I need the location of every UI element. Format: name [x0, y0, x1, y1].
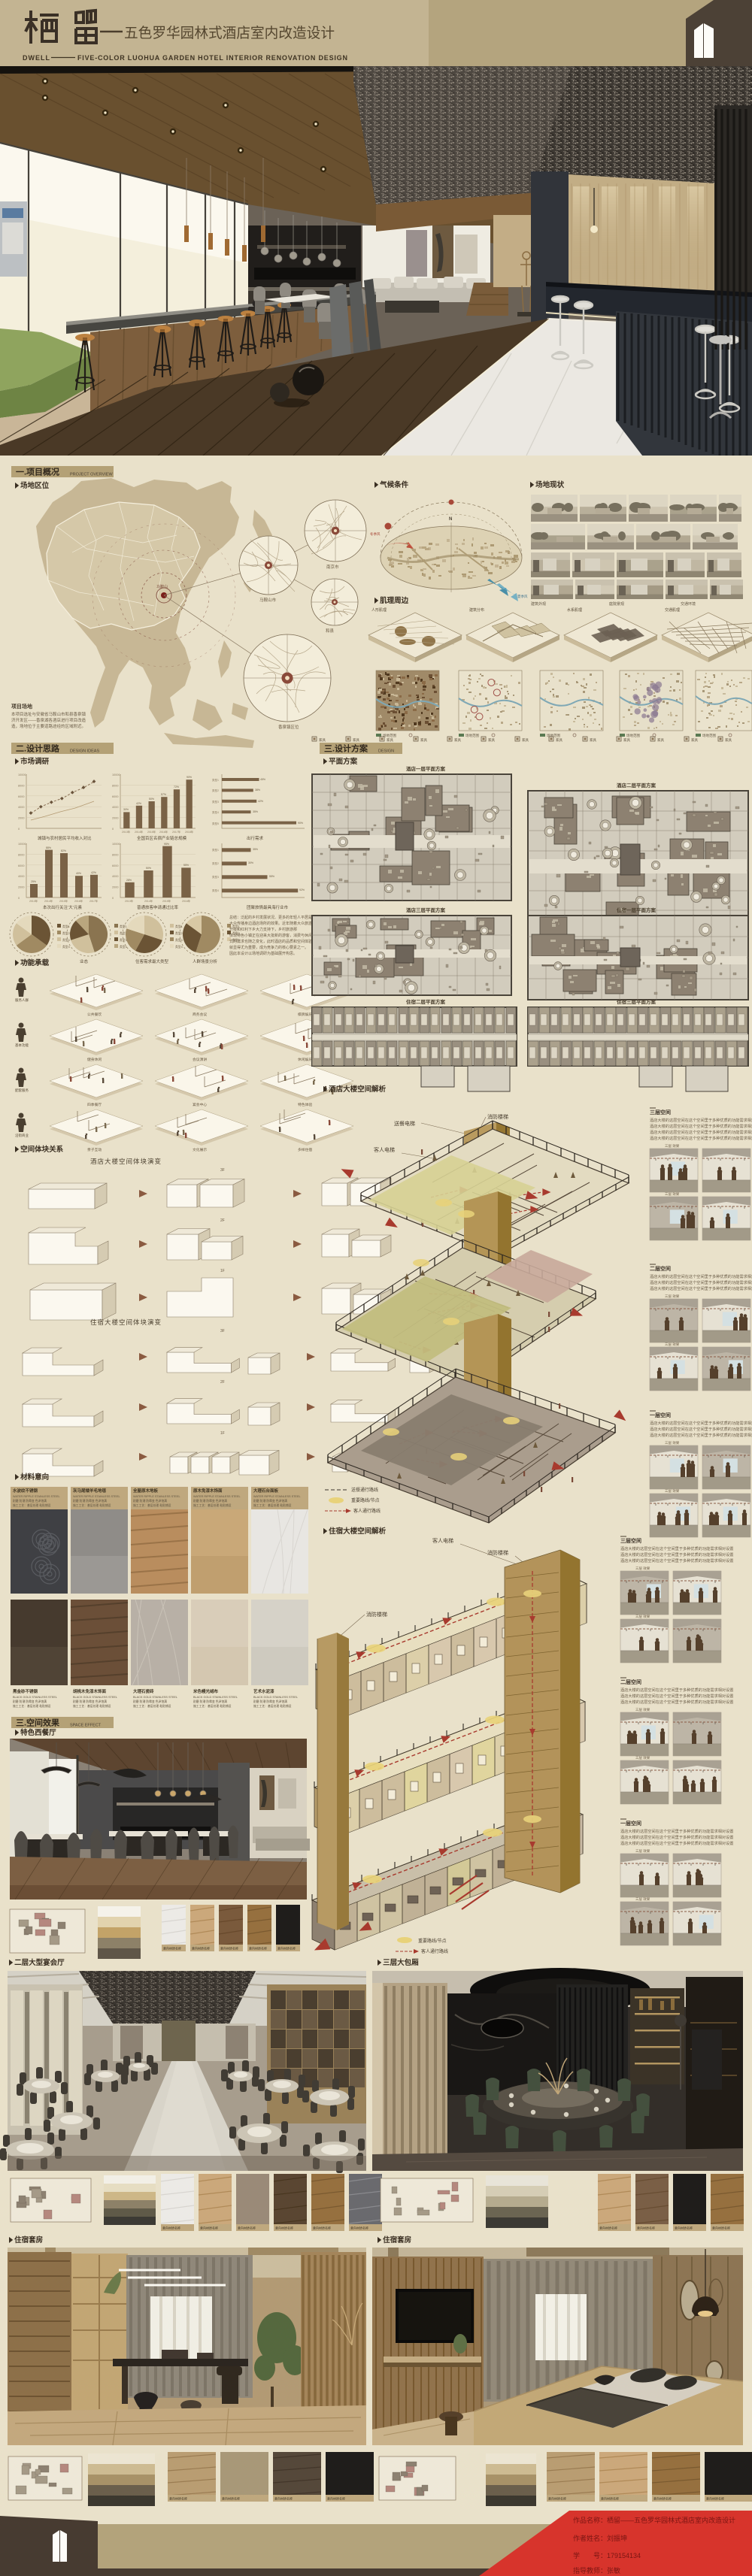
svg-text:2014年: 2014年 — [135, 830, 144, 834]
svg-text:类型4: 类型4 — [212, 810, 219, 814]
svg-text:6000: 6000 — [112, 795, 118, 798]
svg-text:92%: 92% — [299, 888, 305, 891]
svg-text:重要路线/节点: 重要路线/节点 — [418, 1938, 447, 1944]
svg-text:4000: 4000 — [18, 806, 24, 809]
svg-text:团聚旅情最具海行业市: 团聚旅情最具海行业市 — [247, 904, 289, 910]
svg-text:酒店一层平面方案: 酒店一层平面方案 — [406, 765, 446, 772]
svg-text:家具: 家具 — [556, 737, 562, 743]
svg-text:类型4: 类型4 — [62, 945, 70, 949]
svg-text:意向材质名称: 意向材质名称 — [277, 1946, 296, 1951]
svg-text:场地范围: 场地范围 — [626, 733, 640, 738]
svg-text:10000: 10000 — [112, 773, 120, 776]
svg-text:4000: 4000 — [112, 875, 118, 878]
svg-text:家具: 家具 — [522, 737, 529, 743]
svg-text:1F: 1F — [220, 1269, 225, 1273]
svg-text:2014年: 2014年 — [144, 899, 153, 903]
svg-text:体现特色小镇正在迎来大批新的游客，消费与休闲: 体现特色小镇正在迎来大批新的游客，消费与休闲 — [229, 933, 312, 938]
svg-text:类型4: 类型4 — [175, 945, 183, 949]
svg-text:类型4: 类型4 — [212, 888, 219, 892]
svg-text:本次出行关注‘大’元素: 本次出行关注‘大’元素 — [43, 904, 82, 910]
svg-text:黑金砂不锈钢: 黑金砂不锈钢 — [13, 1688, 38, 1694]
svg-text:施工工艺：基层处理 粘贴铺设: 施工工艺：基层处理 粘贴铺设 — [253, 1503, 292, 1507]
svg-text:8000: 8000 — [112, 784, 118, 787]
svg-text:意向材质名称: 意向材质名称 — [637, 2226, 655, 2230]
svg-text:造，场地位于主要道路途经的区域附近。: 造，场地位于主要道路途经的区域附近。 — [11, 723, 86, 729]
svg-text:95%: 95% — [164, 843, 169, 846]
svg-text:场地区位: 场地区位 — [20, 481, 50, 490]
svg-text:酒店大楼的这层空间在这个空间里于多种优质的功能需求相对设置: 酒店大楼的这层空间在这个空间里于多种优质的功能需求相对设置 — [650, 1135, 752, 1141]
svg-text:三层 效果: 三层 效果 — [665, 1191, 680, 1197]
svg-text:学 号：179154134: 学 号：179154134 — [573, 2551, 641, 2559]
svg-text:送餐电梯: 送餐电梯 — [394, 1120, 415, 1127]
svg-text:家具: 家具 — [319, 737, 326, 743]
svg-text:住宿三层平面方案: 住宿三层平面方案 — [617, 998, 656, 1005]
svg-text:耐磨 防潮 防霉变 色泽饱满: 耐磨 防潮 防霉变 色泽饱满 — [193, 1499, 227, 1503]
svg-text:平面方案: 平面方案 — [329, 757, 358, 766]
svg-text:三层 效果: 三层 效果 — [665, 1440, 680, 1445]
svg-text:耐磨 防潮 防霉变 色泽饱满: 耐磨 防潮 防霉变 色泽饱满 — [13, 1700, 47, 1703]
svg-text:意向材质名称: 意向材质名称 — [313, 2226, 331, 2230]
svg-text:人形肌理: 人形肌理 — [371, 607, 387, 613]
svg-text:指导教师：张敏: 指导教师：张敏 — [573, 2566, 620, 2574]
svg-text:意向材质名称: 意向材质名称 — [601, 2496, 619, 2501]
svg-text:施工工艺：基层处理 粘贴铺设: 施工工艺：基层处理 粘贴铺设 — [133, 1503, 171, 1507]
svg-text:0: 0 — [18, 828, 20, 831]
svg-text:住宿套房: 住宿套房 — [383, 2235, 411, 2245]
svg-text:28%: 28% — [126, 879, 132, 882]
svg-text:多样住宿: 多样住宿 — [298, 1147, 312, 1152]
svg-text:2015年: 2015年 — [147, 830, 156, 834]
svg-text:二层空间: 二层空间 — [650, 1265, 671, 1272]
svg-text:肌理周边: 肌理周边 — [379, 596, 409, 605]
svg-text:棋牌娱乐: 棋牌娱乐 — [298, 1012, 312, 1017]
svg-text:耐磨 防潮 防霉变 色泽饱满: 耐磨 防潮 防霉变 色泽饱满 — [253, 1700, 287, 1703]
svg-text:家具: 家具 — [657, 737, 664, 743]
svg-text:和县: 和县 — [326, 628, 335, 634]
svg-text:二.设计思路: 二.设计思路 — [16, 743, 60, 754]
svg-text:三层 效果: 三层 效果 — [665, 1342, 680, 1347]
svg-text:水系肌理: 水系肌理 — [567, 607, 582, 613]
svg-text:意向材质名称: 意向材质名称 — [220, 1946, 238, 1951]
svg-text:82%: 82% — [61, 849, 66, 852]
svg-text:家具: 家具 — [691, 737, 698, 743]
svg-text:庭院景观: 庭院景观 — [609, 601, 624, 607]
svg-text:8000: 8000 — [112, 853, 118, 856]
svg-text:类型1: 类型1 — [212, 778, 219, 782]
svg-text:酒店大楼空间解析: 酒店大楼空间解析 — [329, 1085, 387, 1094]
svg-text:酒店大楼的这层空间在这个空间里于多种优质的功能需求相对设置: 酒店大楼的这层空间在这个空间里于多种优质的功能需求相对设置 — [620, 1699, 733, 1705]
svg-text:意向材质名称: 意向材质名称 — [350, 2226, 368, 2230]
svg-text:三层 效果: 三层 效果 — [635, 1755, 650, 1760]
svg-text:2016年: 2016年 — [159, 830, 168, 834]
svg-text:材料意向: 材料意向 — [20, 1473, 49, 1482]
svg-text:35%: 35% — [253, 848, 258, 851]
svg-text:酒店大楼的这层空间在这个空间里于多种优质的功能需求相对设置: 酒店大楼的这层空间在这个空间里于多种优质的功能需求相对设置 — [620, 1557, 733, 1563]
svg-text:类型1: 类型1 — [212, 848, 219, 852]
svg-text:10000: 10000 — [112, 843, 120, 846]
svg-text:三.设计方案: 三.设计方案 — [324, 743, 368, 754]
svg-text:家具: 家具 — [387, 737, 393, 743]
svg-text:50%: 50% — [146, 867, 151, 870]
svg-text:WATER RIPPLE STAINLESS STEEL: WATER RIPPLE STAINLESS STEEL — [133, 1495, 180, 1498]
svg-text:二层空间: 二层空间 — [620, 1678, 641, 1685]
svg-text:建筑外观: 建筑外观 — [531, 601, 546, 607]
svg-text:项目场地: 项目场地 — [11, 703, 32, 710]
svg-text:酒店大楼的这层空间在这个空间里于多种优质的功能需求相对设置: 酒店大楼的这层空间在这个空间里于多种优质的功能需求相对设置 — [650, 1129, 752, 1135]
svg-text:特色西餐厅: 特色西餐厅 — [20, 1728, 56, 1737]
svg-text:意向材质名称: 意向材质名称 — [675, 2226, 693, 2230]
svg-text:酒店大楼的这层空间在这个空间里于多种优质的功能需求相对设置: 酒店大楼的这层空间在这个空间里于多种优质的功能需求相对设置 — [650, 1432, 752, 1438]
svg-text:类型3: 类型3 — [212, 800, 219, 804]
svg-text:90%: 90% — [298, 822, 303, 825]
svg-text:类型1: 类型1 — [120, 925, 127, 928]
svg-text:0: 0 — [18, 897, 20, 900]
svg-text:意向材质名称: 意向材质名称 — [192, 1946, 210, 1951]
svg-text:WATER RIPPLE STAINLESS STEEL: WATER RIPPLE STAINLESS STEEL — [73, 1495, 120, 1498]
svg-text:原木免漆木饰面: 原木免漆木饰面 — [193, 1488, 223, 1494]
svg-text:意向材质名称: 意向材质名称 — [712, 2226, 730, 2230]
svg-text:耐磨 防潮 防霉变 色泽饱满: 耐磨 防潮 防霉变 色泽饱满 — [13, 1499, 47, 1503]
svg-text:消防楼梯: 消防楼梯 — [366, 1611, 387, 1618]
svg-text:耐磨 防潮 防霉变 色泽饱满: 耐磨 防潮 防霉变 色泽饱满 — [73, 1499, 107, 1503]
svg-text:三层 效果: 三层 效果 — [635, 1614, 650, 1619]
svg-text:消防楼梯: 消防楼梯 — [487, 1113, 508, 1120]
svg-text:2F: 2F — [220, 1218, 225, 1223]
svg-text:一层空间: 一层空间 — [650, 1412, 671, 1418]
svg-text:2017年: 2017年 — [89, 899, 99, 903]
svg-text:灰马尾矮羊毛地毯: 灰马尾矮羊毛地毯 — [73, 1488, 107, 1494]
svg-text:耐磨 防潮 防霉变 色泽饱满: 耐磨 防潮 防霉变 色泽饱满 — [253, 1499, 287, 1503]
svg-text:三层 效果: 三层 效果 — [635, 1707, 650, 1712]
svg-text:业态: 业态 — [80, 958, 89, 964]
svg-text:大理石台面板: 大理石台面板 — [253, 1488, 279, 1494]
svg-text:施工工艺：基层处理 粘贴铺设: 施工工艺：基层处理 粘贴铺设 — [193, 1503, 232, 1507]
svg-text:家具: 家具 — [353, 737, 359, 743]
svg-text:三层 效果: 三层 效果 — [635, 1896, 650, 1902]
svg-text:意向材质名称: 意向材质名称 — [653, 2496, 672, 2501]
svg-text:香泉镇区位: 香泉镇区位 — [278, 724, 299, 730]
svg-text:42%: 42% — [136, 802, 141, 805]
svg-text:冬季风: 冬季风 — [370, 531, 381, 537]
svg-text:酒店大楼的这层空间在这个空间里于多种优质的功能需求相对设置: 酒店大楼的这层空间在这个空间里于多种优质的功能需求相对设置 — [620, 1687, 733, 1693]
svg-text:施工工艺：基层处理 粘贴铺设: 施工工艺：基层处理 粘贴铺设 — [73, 1503, 111, 1507]
svg-text:类型3: 类型3 — [175, 938, 183, 942]
svg-text:2000: 2000 — [18, 886, 24, 889]
svg-text:客人通行路线: 客人通行路线 — [421, 1948, 448, 1954]
svg-text:场地范围: 场地范围 — [465, 733, 479, 738]
svg-text:普通旅客申请通过比率: 普通旅客申请通过比率 — [137, 904, 179, 910]
svg-text:空间体块关系: 空间体块关系 — [20, 1145, 64, 1154]
svg-text:BLACK GOLD STAINLESS STEEL: BLACK GOLD STAINLESS STEEL — [73, 1696, 117, 1699]
svg-text:施工工艺：基层处理 粘贴铺设: 施工工艺：基层处理 粘贴铺设 — [133, 1704, 171, 1708]
svg-text:酒店大楼的这层空间在这个空间里于多种优质的功能需求相对设置: 酒店大楼的这层空间在这个空间里于多种优质的功能需求相对设置 — [650, 1273, 752, 1279]
svg-text:2000: 2000 — [18, 817, 24, 820]
svg-text:6000: 6000 — [112, 864, 118, 867]
svg-text:场地现状: 场地现状 — [535, 480, 565, 489]
svg-text:8000: 8000 — [18, 853, 24, 856]
svg-text:家具: 家具 — [725, 737, 732, 743]
svg-text:三层空间: 三层空间 — [650, 1109, 671, 1115]
svg-text:意向材质名称: 意向材质名称 — [238, 2226, 256, 2230]
svg-text:艺术水泥漆: 艺术水泥漆 — [253, 1688, 274, 1694]
svg-text:DWELL: DWELL — [23, 54, 50, 62]
svg-text:0: 0 — [112, 897, 114, 900]
svg-text:因此本设计以场地调研为基础展开构思。: 因此本设计以场地调研为基础展开构思。 — [229, 951, 297, 956]
svg-text:马鞍山市: 马鞍山市 — [259, 597, 277, 603]
svg-text:米色幔光绒布: 米色幔光绒布 — [193, 1688, 219, 1694]
svg-text:酒店二层平面方案: 酒店二层平面方案 — [617, 782, 656, 789]
svg-text:住客需求最大类型: 住客需求最大类型 — [135, 958, 169, 964]
svg-text:市场调研: 市场调研 — [20, 757, 50, 766]
svg-text:酒店大楼的这层空间在这个空间里于多种优质的功能需求相对设置: 酒店大楼的这层空间在这个空间里于多种优质的功能需求相对设置 — [650, 1123, 752, 1129]
svg-text:住宿大楼空间解析: 住宿大楼空间解析 — [329, 1527, 387, 1536]
svg-text:30%: 30% — [248, 861, 253, 864]
svg-text:50%: 50% — [149, 798, 154, 801]
svg-text:DESIGN IDEAS: DESIGN IDEAS — [70, 749, 99, 754]
svg-text:家具: 家具 — [420, 737, 427, 743]
svg-text:住宿一层平面方案: 住宿一层平面方案 — [617, 907, 656, 913]
svg-text:WATER RIPPLE STAINLESS STEEL: WATER RIPPLE STAINLESS STEEL — [253, 1495, 301, 1498]
svg-text:意向材质名称: 意向材质名称 — [274, 2496, 293, 2501]
svg-text:住宿大楼空间体块演变: 住宿大楼空间体块演变 — [90, 1318, 162, 1326]
svg-text:55%: 55% — [183, 864, 189, 867]
svg-text:72%: 72% — [174, 786, 179, 789]
svg-text:三层 效果: 三层 效果 — [665, 1143, 680, 1149]
svg-text:夏季风: 夏季风 — [517, 594, 528, 599]
svg-text:客人电梯: 客人电梯 — [432, 1537, 453, 1544]
svg-text:BLACK GOLD STAINLESS STEEL: BLACK GOLD STAINLESS STEEL — [133, 1696, 177, 1699]
svg-text:38%: 38% — [255, 789, 260, 792]
svg-text:耐磨 防潮 防霉变 色泽饱满: 耐磨 防潮 防霉变 色泽饱满 — [73, 1700, 107, 1703]
svg-text:10000: 10000 — [18, 843, 26, 846]
svg-text:三层 效果: 三层 效果 — [665, 1488, 680, 1494]
svg-text:酒店大楼的这层空间在这个空间里于多种优质的功能需求相对设置: 酒店大楼的这层空间在这个空间里于多种优质的功能需求相对设置 — [650, 1420, 752, 1426]
svg-text:施工工艺：基层处理 粘贴铺设: 施工工艺：基层处理 粘贴铺设 — [253, 1704, 292, 1708]
svg-text:酒店大楼的这层空间在这个空间里于多种优质的功能需求相对设置: 酒店大楼的这层空间在这个空间里于多种优质的功能需求相对设置 — [650, 1279, 752, 1285]
svg-text:休闲娱乐: 休闲娱乐 — [298, 1057, 312, 1062]
svg-text:2015年: 2015年 — [162, 899, 171, 903]
svg-text:45%: 45% — [260, 778, 265, 781]
svg-text:式的需求也随之变化，此时酒店的品质和空间体验: 式的需求也随之变化，此时酒店的品质和空间体验 — [229, 939, 312, 944]
svg-text:55%: 55% — [269, 875, 274, 878]
svg-text:42%: 42% — [91, 871, 96, 874]
svg-text:南京市: 南京市 — [326, 564, 339, 570]
svg-text:施工工艺：基层处理 粘贴铺设: 施工工艺：基层处理 粘贴铺设 — [13, 1704, 51, 1708]
svg-text:三层 效果: 三层 效果 — [665, 1294, 680, 1299]
svg-text:二层大型宴会厅: 二层大型宴会厅 — [14, 1958, 65, 1967]
svg-text:客人电梯: 客人电梯 — [374, 1146, 395, 1153]
svg-text:家具: 家具 — [488, 737, 495, 743]
svg-text:类型2: 类型2 — [212, 789, 219, 792]
svg-text:本项目选址与安徽省马鞍山市和县香泉镇: 本项目选址与安徽省马鞍山市和县香泉镇 — [11, 711, 86, 717]
svg-text:服务人群: 服务人群 — [15, 997, 29, 1003]
svg-text:8000: 8000 — [18, 784, 24, 787]
svg-text:三层大包厢: 三层大包厢 — [383, 1958, 419, 1967]
svg-text:重要路线/节点: 重要路线/节点 — [351, 1497, 380, 1503]
svg-text:大理石瓷砖: 大理石瓷砖 — [133, 1688, 154, 1694]
svg-text:PROJECT OVERVIEW: PROJECT OVERVIEW — [70, 473, 113, 477]
svg-text:场地范围: 场地范围 — [383, 733, 396, 738]
svg-text:文化展示: 文化展示 — [193, 1147, 207, 1152]
svg-text:全屋原木地板: 全屋原木地板 — [132, 1488, 159, 1494]
svg-text:2015年: 2015年 — [59, 899, 68, 903]
svg-text:健身休闲: 健身休闲 — [87, 1057, 102, 1062]
svg-text:2016年: 2016年 — [182, 899, 191, 903]
svg-text:交通肌理: 交通肌理 — [665, 607, 680, 613]
svg-text:DESIGN: DESIGN — [378, 749, 394, 754]
svg-text:家具: 家具 — [590, 737, 596, 743]
svg-text:10000: 10000 — [18, 773, 26, 776]
svg-text:基本功能: 基本功能 — [15, 1043, 29, 1048]
svg-text:2000: 2000 — [112, 817, 118, 820]
svg-text:会议演讲: 会议演讲 — [193, 1057, 207, 1062]
svg-text:家具: 家具 — [623, 737, 630, 743]
svg-text:意向材质名称: 意向材质名称 — [275, 2226, 293, 2230]
svg-text:42%: 42% — [258, 800, 263, 803]
svg-text:三.空间效果: 三.空间效果 — [16, 1718, 59, 1728]
svg-text:三层 效果: 三层 效果 — [635, 1848, 650, 1854]
svg-text:功能承载: 功能承载 — [20, 958, 50, 967]
svg-text:BLACK GOLD STAINLESS STEEL: BLACK GOLD STAINLESS STEEL — [13, 1696, 57, 1699]
svg-text:家具: 家具 — [454, 737, 461, 743]
svg-text:57%: 57% — [161, 793, 166, 796]
svg-text:FIVE-COLOR LUOHUA GARDEN HOTEL: FIVE-COLOR LUOHUA GARDEN HOTEL INTERIOR … — [77, 54, 348, 62]
svg-text:酒店大楼的这层空间在这个空间里于多种优质的功能需求相对设置: 酒店大楼的这层空间在这个空间里于多种优质的功能需求相对设置 — [620, 1840, 733, 1846]
svg-text:马鞍山: 马鞍山 — [156, 584, 168, 589]
svg-text:酒店大楼的这层空间在这个空间里于多种优质的功能需求相对设置: 酒店大楼的这层空间在这个空间里于多种优质的功能需求相对设置 — [650, 1285, 752, 1291]
svg-text:类型2: 类型2 — [175, 931, 183, 935]
svg-text:类型5: 类型5 — [212, 822, 219, 825]
svg-text:SPACE EFFECT: SPACE EFFECT — [70, 1724, 102, 1728]
svg-text:公共餐饮: 公共餐饮 — [87, 1012, 102, 1017]
svg-text:意向材质名称: 意向材质名称 — [200, 2226, 218, 2230]
svg-text:2014年: 2014年 — [44, 899, 53, 903]
svg-text:1F: 1F — [220, 1431, 225, 1436]
svg-text:一.项目概况: 一.项目概况 — [16, 467, 59, 477]
svg-text:酒店大楼的这层空间在这个空间里于多种优质的功能需求相对设置: 酒店大楼的这层空间在这个空间里于多种优质的功能需求相对设置 — [650, 1426, 752, 1432]
svg-text:人群场景分析: 人群场景分析 — [193, 958, 218, 964]
svg-text:6000: 6000 — [18, 864, 24, 867]
svg-text:90%: 90% — [186, 776, 192, 779]
svg-text:商务会议: 商务会议 — [193, 1012, 207, 1017]
svg-text:酒店大楼空间体块演变: 酒店大楼空间体块演变 — [90, 1158, 162, 1165]
svg-text:意向材质名称: 意向材质名称 — [169, 2496, 187, 2501]
svg-text:济开发区——香泉湖各酒店进行项目改造: 济开发区——香泉湖各酒店进行项目改造 — [11, 717, 86, 723]
svg-text:2013年: 2013年 — [125, 899, 134, 903]
svg-text:意向材质名称: 意向材质名称 — [548, 2496, 566, 2501]
svg-text:五色罗华园林式酒店室内改造设计: 五色罗华园林式酒店室内改造设计 — [124, 25, 335, 41]
svg-text:意向材质名称: 意向材质名称 — [706, 2496, 724, 2501]
svg-text:住宿套房: 住宿套房 — [14, 2235, 43, 2245]
svg-text:意向材质名称: 意向材质名称 — [327, 2496, 345, 2501]
svg-text:4000: 4000 — [18, 875, 24, 878]
svg-text:三层空间: 三层空间 — [620, 1537, 641, 1544]
svg-text:类型3: 类型3 — [212, 875, 219, 879]
svg-text:25%: 25% — [31, 880, 36, 883]
svg-text:酒店三层平面方案: 酒店三层平面方案 — [406, 907, 446, 913]
svg-text:配套服务: 配套服务 — [15, 1088, 29, 1093]
svg-text:酒店大楼的这层空间在这个空间里于多种优质的功能需求相对设置: 酒店大楼的这层空间在这个空间里于多种优质的功能需求相对设置 — [620, 1545, 733, 1551]
svg-text:特色体验: 特色体验 — [298, 1102, 312, 1107]
svg-text:意向材质名称: 意向材质名称 — [599, 2226, 617, 2230]
svg-text:30%: 30% — [123, 808, 129, 811]
svg-text:耐磨 防潮 防霉变 色泽饱满: 耐磨 防潮 防霉变 色泽饱满 — [133, 1499, 167, 1503]
svg-text:住宿二层平面方案: 住宿二层平面方案 — [406, 998, 446, 1005]
svg-text:场地范围: 场地范围 — [702, 733, 716, 738]
svg-text:2013年: 2013年 — [122, 830, 131, 834]
svg-text:交通环境: 交通环境 — [681, 601, 696, 607]
svg-text:酒店大楼的这层空间在这个空间里于多种优质的功能需求相对设置: 酒店大楼的这层空间在这个空间里于多种优质的功能需求相对设置 — [620, 1834, 733, 1840]
svg-text:6000: 6000 — [18, 795, 24, 798]
svg-text:胡桃木免漆木饰面: 胡桃木免漆木饰面 — [73, 1688, 107, 1694]
svg-text:BLACK GOLD STAINLESS STEEL: BLACK GOLD STAINLESS STEEL — [253, 1696, 298, 1699]
svg-text:客人通行路线: 客人通行路线 — [353, 1508, 381, 1514]
svg-text:意向材质名称: 意向材质名称 — [163, 1946, 181, 1951]
svg-text:四季餐厅: 四季餐厅 — [87, 1102, 102, 1107]
svg-text:类型3: 类型3 — [62, 938, 70, 942]
svg-text:施工工艺：基层处理 粘贴铺设: 施工工艺：基层处理 粘贴铺设 — [193, 1704, 232, 1708]
svg-text:酒店大楼的这层空间在这个空间里于多种优质的功能需求相对设置: 酒店大楼的这层空间在这个空间里于多种优质的功能需求相对设置 — [650, 1117, 752, 1123]
svg-text:2016年: 2016年 — [74, 899, 83, 903]
svg-text:意向材质名称: 意向材质名称 — [222, 2496, 240, 2501]
svg-text:气候条件: 气候条件 — [379, 480, 409, 489]
svg-text:意向材质名称: 意向材质名称 — [249, 1946, 267, 1951]
svg-text:WATER RIPPLE STAINLESS STEEL: WATER RIPPLE STAINLESS STEEL — [193, 1495, 241, 1498]
svg-text:宴会中心: 宴会中心 — [193, 1102, 207, 1107]
svg-text:意向材质名称: 意向材质名称 — [162, 2226, 180, 2230]
svg-text:一层空间: 一层空间 — [620, 1820, 641, 1827]
svg-text:酒店大楼的这层空间在这个空间里于多种优质的功能需求相对设置: 酒店大楼的这层空间在这个空间里于多种优质的功能需求相对设置 — [620, 1828, 733, 1834]
svg-text:35%: 35% — [253, 810, 258, 813]
svg-text:N: N — [449, 517, 452, 522]
svg-text:4000: 4000 — [112, 806, 118, 809]
svg-text:88%: 88% — [46, 846, 51, 849]
svg-text:2013年: 2013年 — [29, 899, 38, 903]
svg-text:BLACK GOLD STAINLESS STEEL: BLACK GOLD STAINLESS STEEL — [193, 1696, 238, 1699]
svg-text:2000: 2000 — [112, 886, 118, 889]
svg-text:3F: 3F — [220, 1329, 225, 1333]
svg-text:三层 效果: 三层 效果 — [635, 1566, 650, 1571]
svg-text:沿街商业: 沿街商业 — [15, 1133, 29, 1138]
svg-text:3F: 3F — [220, 1168, 225, 1173]
svg-text:酒店大楼的这层空间在这个空间里于多种优质的功能需求相对设置: 酒店大楼的这层空间在这个空间里于多种优质的功能需求相对设置 — [620, 1693, 733, 1699]
svg-text:升级和红利下乡大力支持下，乡村旅游那: 升级和红利下乡大力支持下，乡村旅游那 — [229, 927, 297, 932]
svg-text:2F: 2F — [220, 1380, 225, 1385]
svg-text:作品名称：栖留——五色罗华园林式酒店室内改造设计: 作品名称：栖留——五色罗华园林式酒店室内改造设计 — [573, 2516, 735, 2524]
svg-text:施工工艺：基层处理 粘贴铺设: 施工工艺：基层处理 粘贴铺设 — [73, 1704, 111, 1708]
svg-text:耐磨 防潮 防霉变 色泽饱满: 耐磨 防潮 防霉变 色泽饱满 — [193, 1700, 227, 1703]
svg-text:类型2: 类型2 — [212, 861, 219, 865]
svg-text:0: 0 — [112, 828, 114, 831]
svg-text:出行需求: 出行需求 — [247, 835, 264, 841]
svg-text:施工工艺：基层处理 粘贴铺设: 施工工艺：基层处理 粘贴铺设 — [13, 1503, 51, 1507]
svg-text:酒店大楼的这层空间在这个空间里于多种优质的功能需求相对设置: 酒店大楼的这层空间在这个空间里于多种优质的功能需求相对设置 — [620, 1551, 733, 1557]
svg-text:40%: 40% — [76, 872, 81, 875]
svg-text:亲子互动: 亲子互动 — [87, 1147, 102, 1152]
svg-text:2017年: 2017年 — [172, 830, 181, 834]
svg-text:耐磨 防潮 防霉变 色泽饱满: 耐磨 防潮 防霉变 色泽饱满 — [133, 1700, 167, 1703]
svg-text:作者姓名：刘振坤: 作者姓名：刘振坤 — [573, 2534, 627, 2542]
svg-text:全国百区名宿产业链总规模: 全国百区名宿产业链总规模 — [137, 835, 187, 841]
svg-text:送餐通行路线: 送餐通行路线 — [351, 1487, 378, 1493]
svg-text:WATER RIPPLE STAINLESS STEEL: WATER RIPPLE STAINLESS STEEL — [13, 1495, 60, 1498]
svg-text:建筑分布: 建筑分布 — [469, 607, 484, 613]
svg-text:水波纹不锈钢: 水波纹不锈钢 — [13, 1488, 38, 1494]
svg-text:就显得尤为重要，成为竞争力的核心要素之一。: 就显得尤为重要，成为竞争力的核心要素之一。 — [229, 945, 308, 950]
svg-text:城镇与农村居民平均收入对比: 城镇与农村居民平均收入对比 — [38, 835, 92, 841]
svg-text:类型2: 类型2 — [62, 931, 70, 935]
svg-text:2018年: 2018年 — [185, 830, 194, 834]
